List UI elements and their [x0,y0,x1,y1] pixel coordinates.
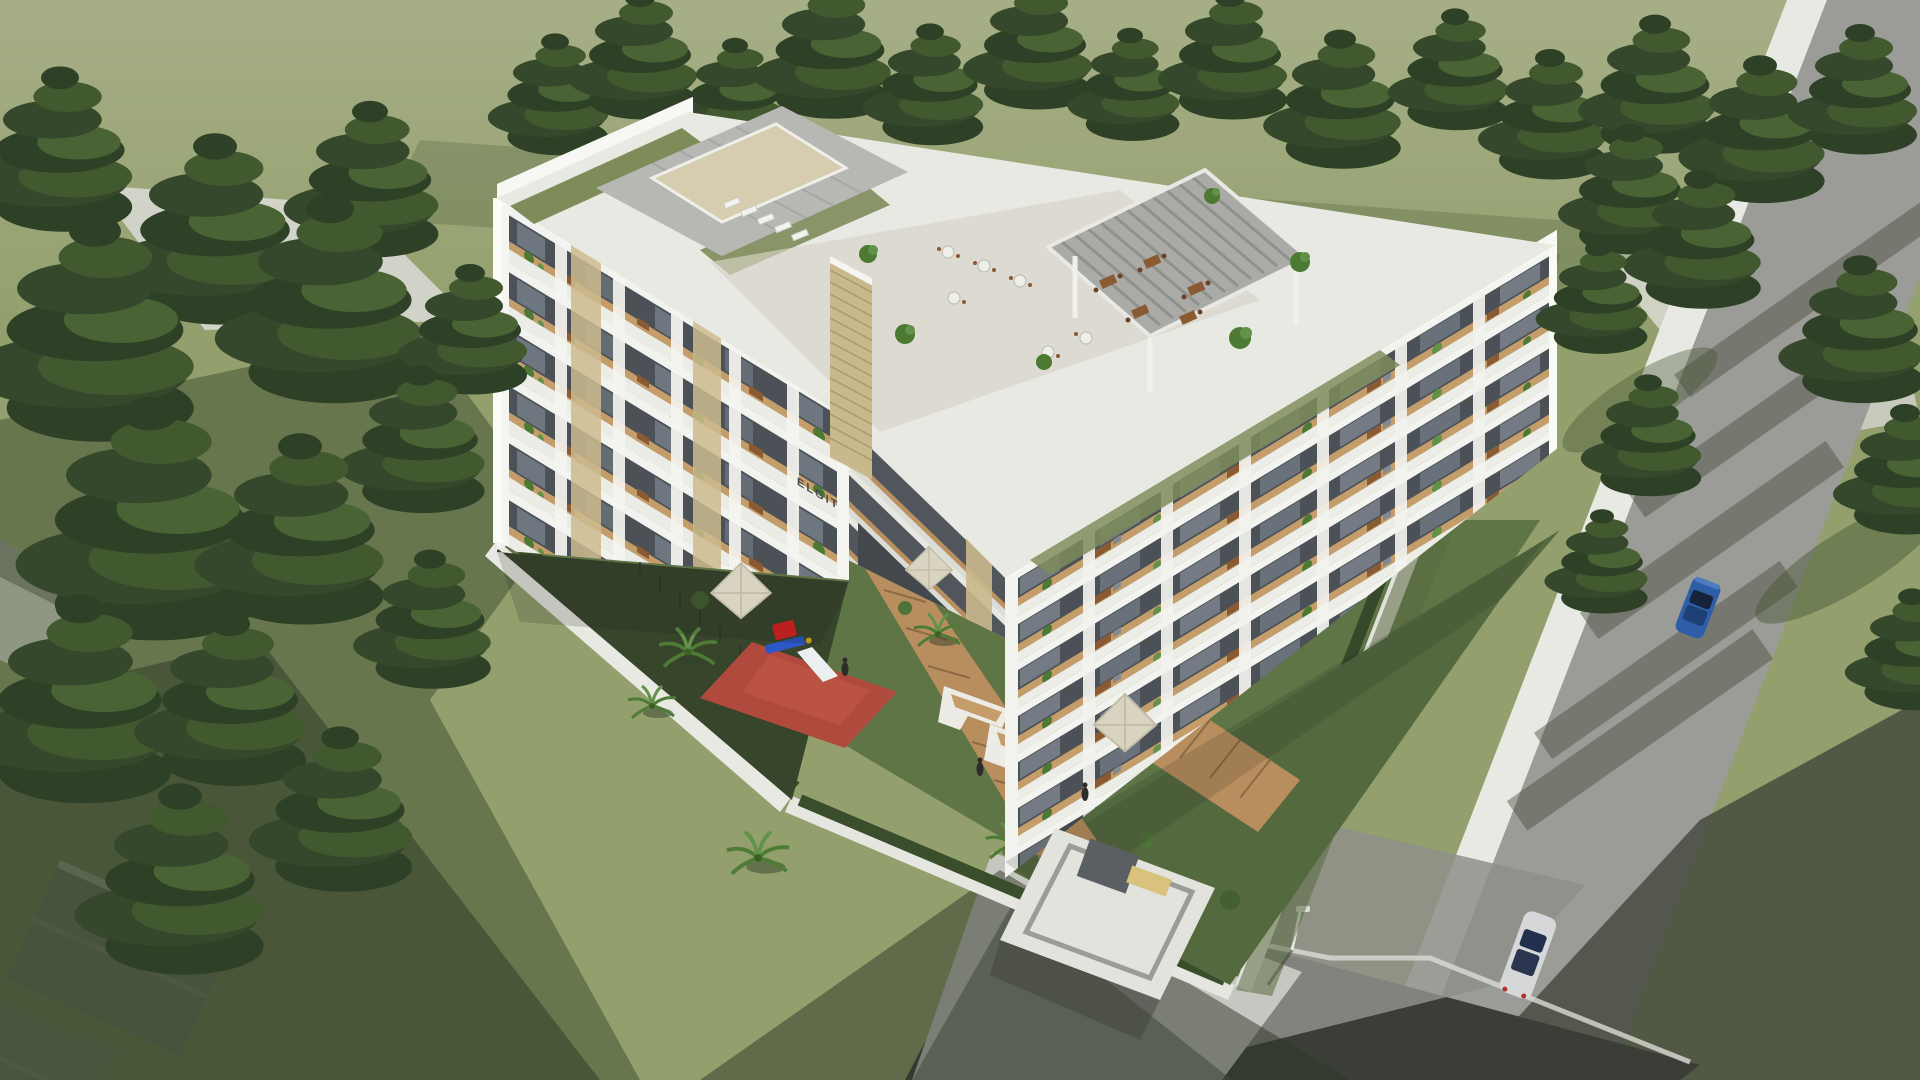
bush [898,601,912,615]
person [977,758,984,777]
architectural-render: ELGIT [0,0,1920,1080]
bush [1220,890,1240,910]
person [1082,783,1089,802]
person [842,658,849,677]
slat-tower [830,256,872,479]
